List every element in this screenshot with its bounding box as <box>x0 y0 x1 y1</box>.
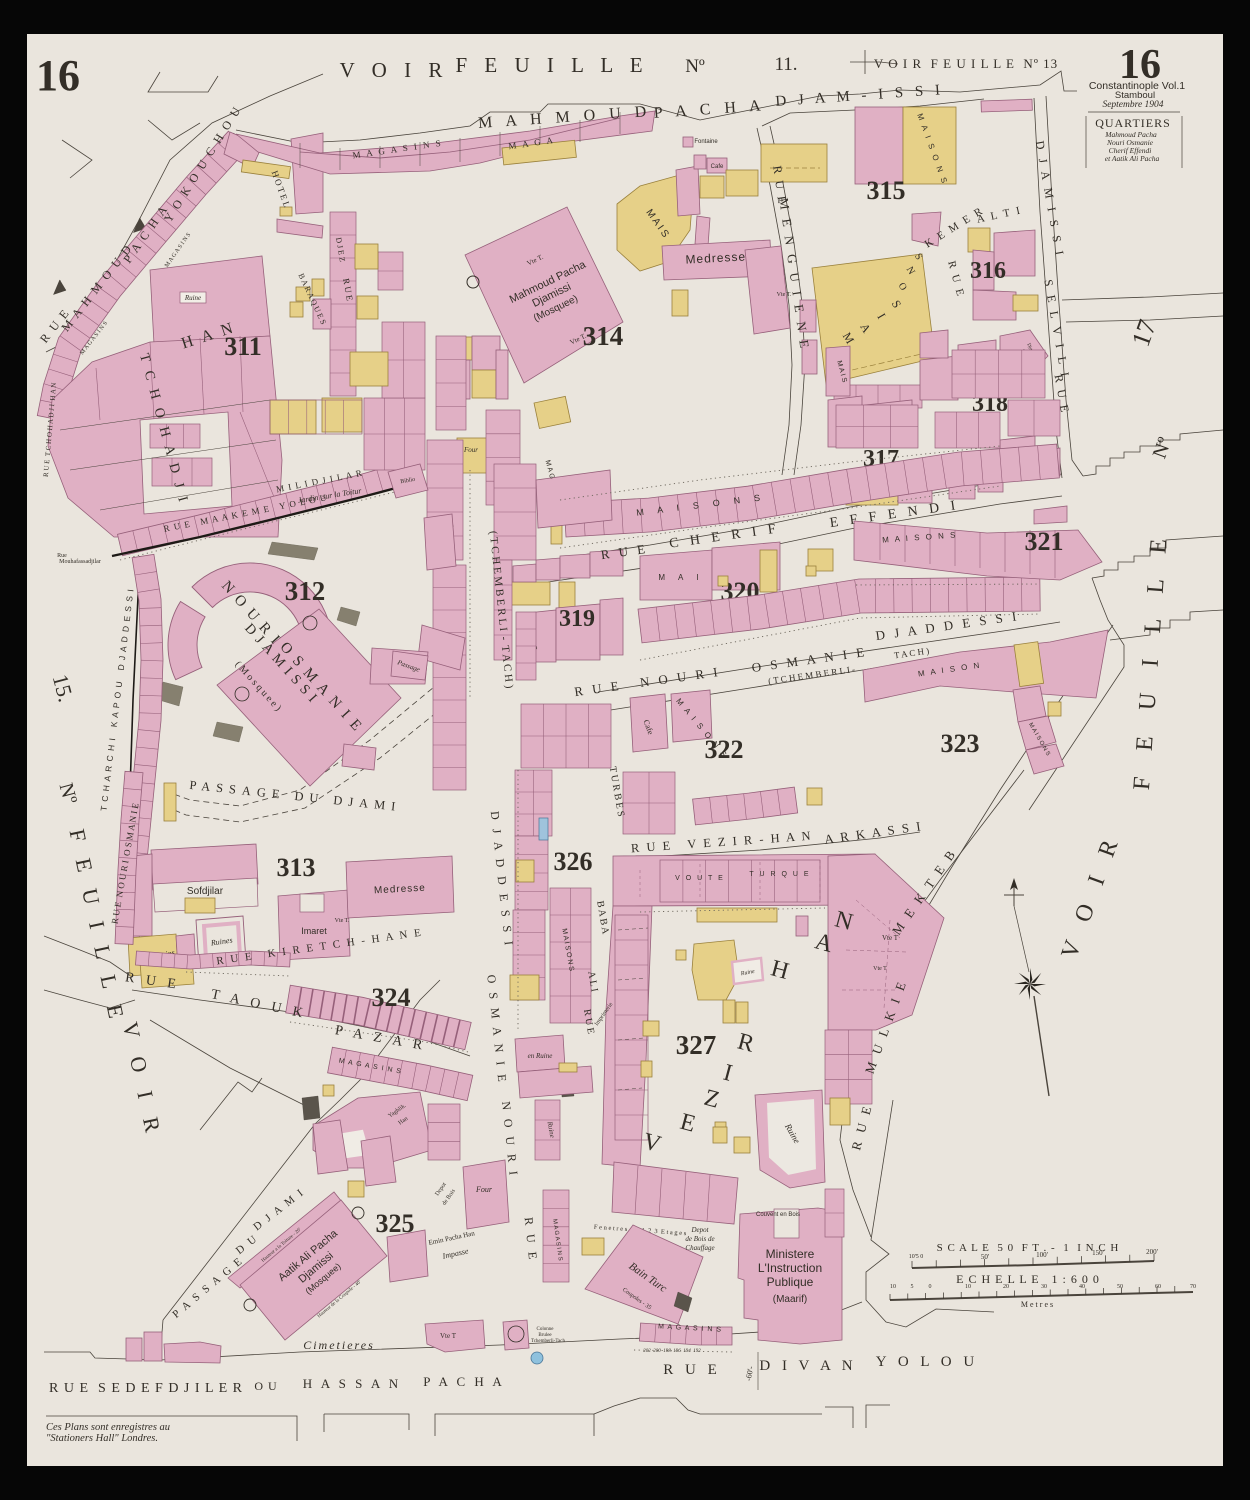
svg-text:60: 60 <box>1155 1284 1161 1290</box>
svg-text:50': 50' <box>981 1253 989 1261</box>
svg-text:F E U I L L E: F E U I L L E <box>455 53 648 77</box>
svg-text:327: 327 <box>676 1030 717 1060</box>
svg-text:10: 10 <box>890 1284 896 1290</box>
svg-text:Septembre 1904: Septembre 1904 <box>1102 100 1163 110</box>
svg-text:11.: 11. <box>774 54 797 75</box>
svg-text:Couvent en Bois: Couvent en Bois <box>756 1212 800 1218</box>
svg-text:R U E: R U E <box>663 1362 721 1378</box>
svg-text:30: 30 <box>1041 1284 1047 1290</box>
svg-text:Publique: Publique <box>767 1275 814 1289</box>
svg-text:315: 315 <box>867 176 906 205</box>
svg-text:V​te T: V​te T <box>440 1332 457 1340</box>
svg-text:V O I R: V O I R <box>340 58 449 82</box>
svg-text:202 200 198 196 194 192: 202 200 198 196 194 192 <box>643 1349 701 1354</box>
svg-text:Y O L O U: Y O L O U <box>876 1354 978 1370</box>
svg-text:Four: Four <box>475 1185 493 1194</box>
svg-text:V O I R F E U I L L E Nº 13: V O I R F E U I L L E Nº 13 <box>874 56 1058 71</box>
svg-text:et Aatik Ali Pacha: et Aatik Ali Pacha <box>1105 154 1160 163</box>
svg-text:Chauffage: Chauffage <box>685 1244 714 1252</box>
svg-text:100': 100' <box>1036 1251 1048 1259</box>
svg-text:L'Instruction: L'Instruction <box>758 1261 822 1275</box>
svg-text:D I V A N: D I V A N <box>759 1358 856 1374</box>
svg-text:10'5 0: 10'5 0 <box>909 1254 924 1260</box>
svg-text:316: 316 <box>970 258 1006 284</box>
svg-text:319: 319 <box>559 606 595 632</box>
svg-text:Four: Four <box>463 446 478 454</box>
svg-text:Cafe: Cafe <box>711 164 724 170</box>
svg-text:10: 10 <box>965 1284 971 1290</box>
svg-text:311: 311 <box>224 332 262 361</box>
svg-text:R U E S E D E F D J I L E R: R U E S E D E F D J I L E R <box>49 1381 243 1396</box>
svg-text:312: 312 <box>285 576 326 606</box>
svg-text:QUARTIERS: QUARTIERS <box>1095 116 1171 130</box>
svg-text:Fontaine: Fontaine <box>694 139 718 145</box>
svg-text:324: 324 <box>372 983 411 1012</box>
svg-text:M A I: M A I <box>658 573 701 582</box>
svg-text:150': 150' <box>1092 1249 1104 1257</box>
svg-text:314: 314 <box>583 321 624 351</box>
svg-text:O U: O U <box>254 1379 277 1393</box>
svg-text:P A C H A: P A C H A <box>423 1374 504 1389</box>
svg-text:16: 16 <box>36 51 80 100</box>
svg-text:en Ruine: en Ruine <box>528 1052 553 1060</box>
svg-text:Colonne: Colonne <box>537 1327 555 1332</box>
svg-text:T U R Q U E: T U R Q U E <box>749 871 810 878</box>
svg-text:323: 323 <box>941 729 980 758</box>
svg-text:Mouhafassadjilar: Mouhafassadjilar <box>59 558 101 565</box>
svg-text:313: 313 <box>277 853 316 882</box>
svg-text:0: 0 <box>929 1284 932 1290</box>
svg-text:H A S S A N: H A S S A N <box>303 1376 401 1391</box>
svg-text:de Bois de: de Bois de <box>685 1235 714 1243</box>
svg-text:V​te T.: V​te T. <box>335 918 350 924</box>
svg-text:70: 70 <box>1190 1284 1196 1290</box>
svg-text:(Maarif): (Maarif) <box>773 1294 807 1305</box>
svg-text:Cimetieres: Cimetieres <box>303 1338 375 1352</box>
svg-text:V​te T: V​te T <box>873 966 887 972</box>
svg-text:M e t r e s: M e t r e s <box>1021 1300 1053 1309</box>
svg-text:Brulee: Brulee <box>538 1333 552 1338</box>
svg-text:Nº: Nº <box>685 56 705 77</box>
svg-text:Depot: Depot <box>690 1226 709 1234</box>
svg-text:20: 20 <box>1003 1284 1009 1290</box>
svg-text:Tchemberli-Tach: Tchemberli-Tach <box>531 1339 566 1344</box>
svg-text:"Stationers Hall" Londres.: "Stationers Hall" Londres. <box>46 1433 158 1444</box>
svg-text:200': 200' <box>1146 1248 1158 1256</box>
svg-text:50: 50 <box>1117 1284 1123 1290</box>
svg-text:Sofdjilar: Sofdjilar <box>187 886 224 897</box>
svg-text:Ces Plans sont enregistres au: Ces Plans sont enregistres au <box>46 1422 170 1433</box>
svg-text:5: 5 <box>911 1284 914 1290</box>
svg-text:Ministere: Ministere <box>766 1247 815 1261</box>
svg-text:40: 40 <box>1079 1284 1085 1290</box>
svg-text:326: 326 <box>554 847 593 876</box>
svg-text:Imaret: Imaret <box>301 926 327 936</box>
svg-text:321: 321 <box>1025 527 1064 556</box>
svg-text:Ruine: Ruine <box>184 294 201 302</box>
